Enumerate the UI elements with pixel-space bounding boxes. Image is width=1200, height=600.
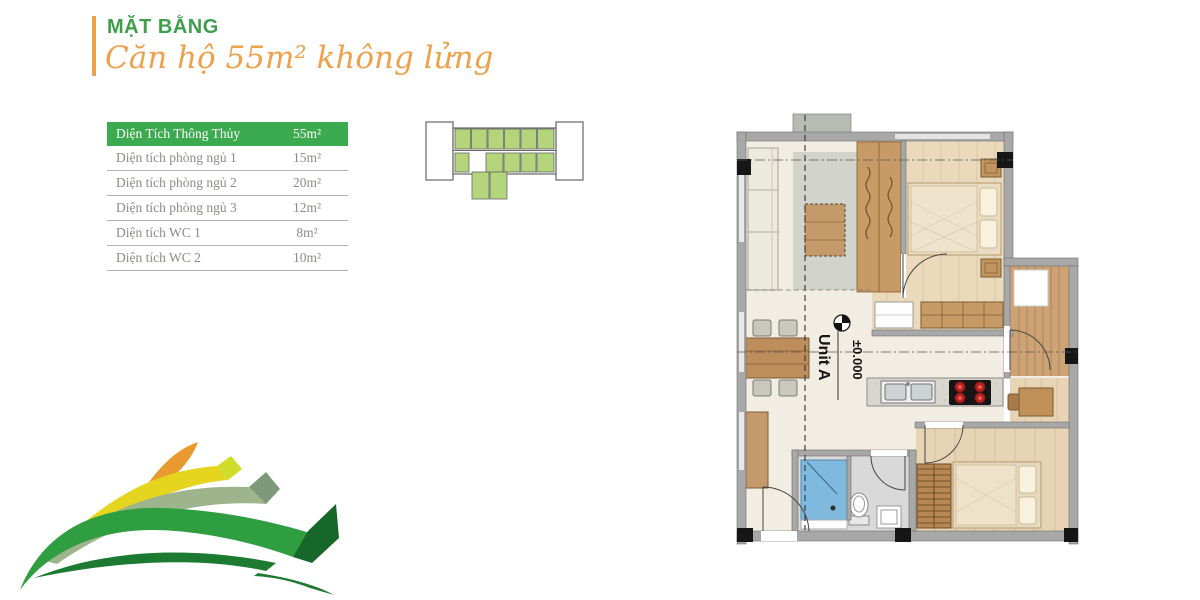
area-table-header-value: 55m²	[266, 126, 348, 142]
page-subtitle: Căn hộ 55m² không lửng	[105, 40, 493, 76]
brochure-page: MẶT BẰNG Căn hộ 55m² không lửng Diện Tíc…	[0, 0, 1200, 600]
row-value: 8m²	[266, 225, 348, 241]
area-table: Diện Tích Thông Thủy 55m² Diện tích phòn…	[107, 122, 348, 271]
balcony-mat	[1014, 270, 1048, 306]
kitchen-counter	[867, 378, 1003, 406]
coffee-table	[805, 204, 845, 256]
wardrobe-2	[917, 464, 951, 528]
kitchen-sink-icon	[881, 381, 935, 403]
toilet-icon	[849, 493, 869, 525]
shower-area	[801, 460, 847, 522]
chair	[753, 320, 771, 336]
row-label: Diện tích phòng ngủ 3	[107, 200, 266, 216]
underline-swoosh-right	[254, 573, 334, 595]
bed-2	[953, 462, 1041, 528]
pillow	[980, 220, 997, 248]
row-label: Diện tích phòng ngủ 1	[107, 150, 266, 166]
accent-bar	[92, 16, 96, 76]
nightstand	[981, 259, 1001, 277]
cooktop-icon	[949, 380, 991, 405]
row-value: 10m²	[266, 250, 348, 266]
row-value: 15m²	[266, 150, 348, 166]
pillow	[1019, 497, 1036, 524]
area-table-header-row: Diện Tích Thông Thủy 55m²	[107, 122, 348, 146]
level-label: ±0.000	[850, 340, 865, 380]
sofa-shelf	[748, 148, 778, 290]
bed-1	[908, 183, 1001, 255]
table-row: Diện tích phòng ngủ 2 20m²	[107, 171, 348, 196]
chair	[779, 380, 797, 396]
key-plan-left-cap	[426, 122, 453, 180]
pillow	[1019, 466, 1036, 493]
chair	[753, 380, 771, 396]
table-row: Diện tích phòng ngủ 3 12m²	[107, 196, 348, 221]
page-title: MẶT BẰNG	[107, 16, 219, 39]
unit-floor-plan: Unit A ±0.000	[735, 112, 1080, 547]
building-key-plan	[424, 116, 586, 208]
key-plan-right-cap	[556, 122, 583, 180]
chair	[1008, 394, 1019, 410]
chair	[779, 320, 797, 336]
fridge	[875, 302, 913, 328]
area-table-header-label: Diện Tích Thông Thủy	[107, 126, 266, 142]
row-label: Diện tích WC 1	[107, 225, 266, 241]
wardrobe	[857, 142, 901, 292]
table-row: Diện tích WC 2 10m²	[107, 246, 348, 271]
table-row: Diện tích WC 1 8m²	[107, 221, 348, 246]
row-label: Diện tích phòng ngủ 2	[107, 175, 266, 191]
bathroom-sink-icon	[877, 506, 901, 528]
shaft-box	[793, 114, 851, 134]
row-value: 12m²	[266, 200, 348, 216]
green-ribbon	[20, 508, 310, 590]
green-ribbon-swoosh	[12, 430, 352, 595]
pillow	[980, 188, 997, 216]
shower-drain-icon	[831, 506, 836, 511]
shoe-cabinet	[746, 412, 768, 488]
row-label: Diện tích WC 2	[107, 250, 266, 266]
underline-swoosh	[34, 553, 276, 578]
row-value: 20m²	[266, 175, 348, 191]
dresser	[921, 302, 1003, 328]
unit-label: Unit A	[815, 334, 832, 381]
table-row: Diện tích phòng ngủ 1 15m²	[107, 146, 348, 171]
